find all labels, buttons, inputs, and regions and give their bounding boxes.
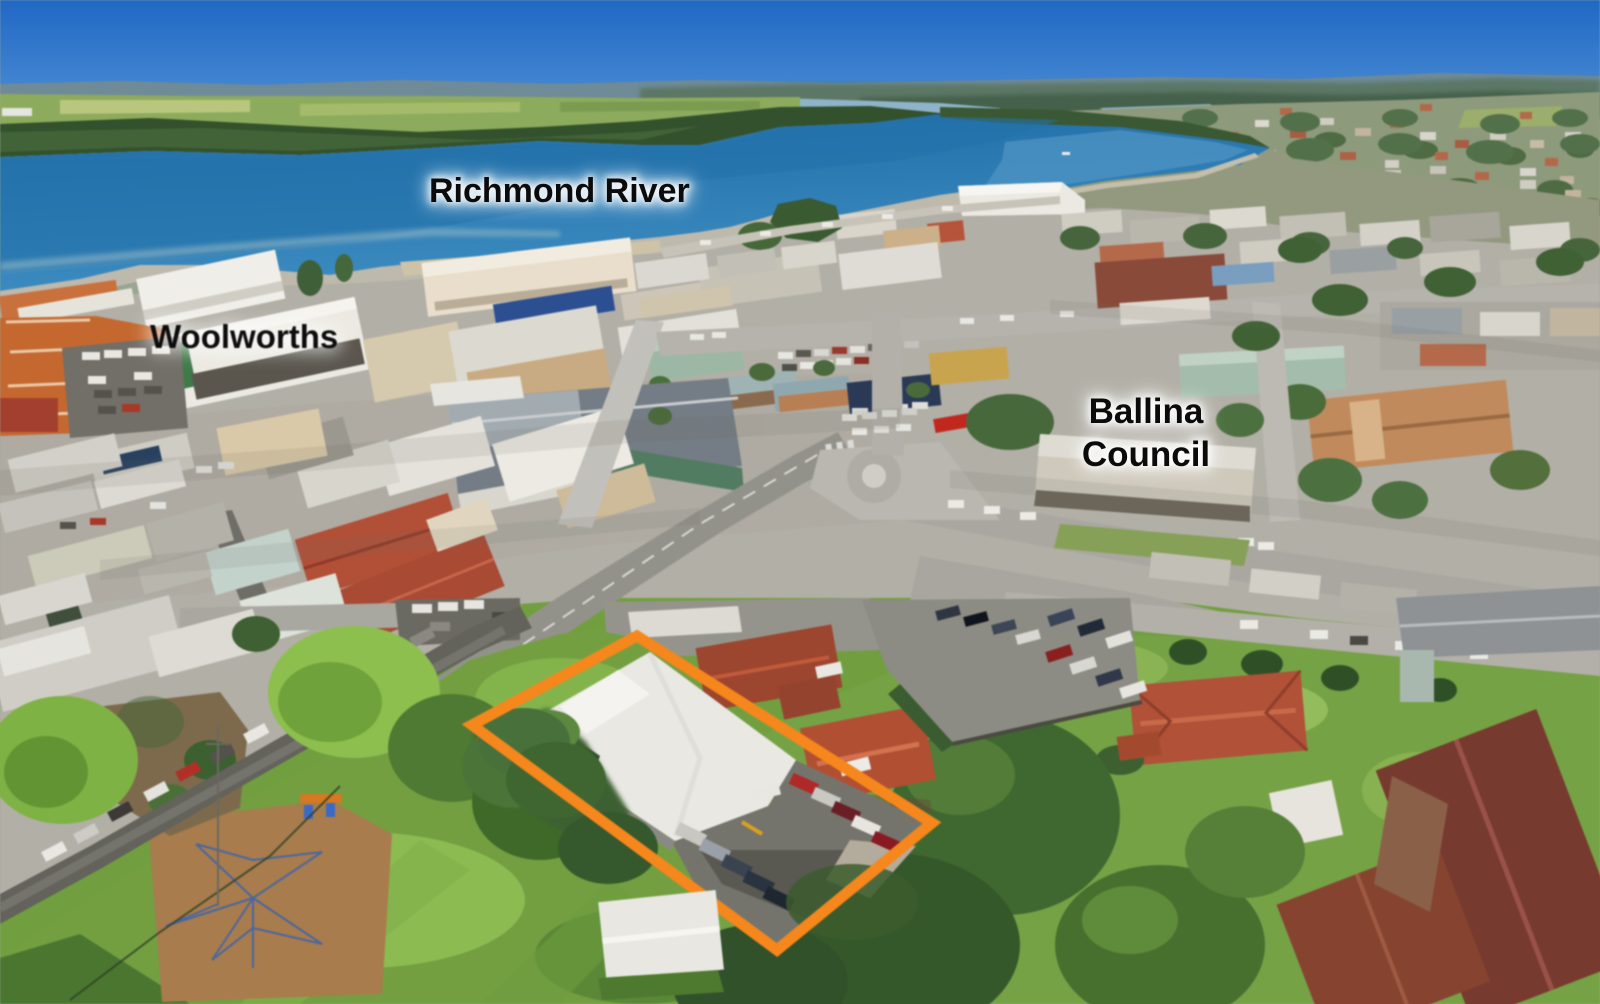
svg-text:Richmond River: Richmond River <box>429 172 690 210</box>
svg-text:Ballina: Ballina <box>1089 392 1204 431</box>
svg-text:Council: Council <box>1082 435 1210 474</box>
svg-text:Woolworths: Woolworths <box>150 318 338 355</box>
